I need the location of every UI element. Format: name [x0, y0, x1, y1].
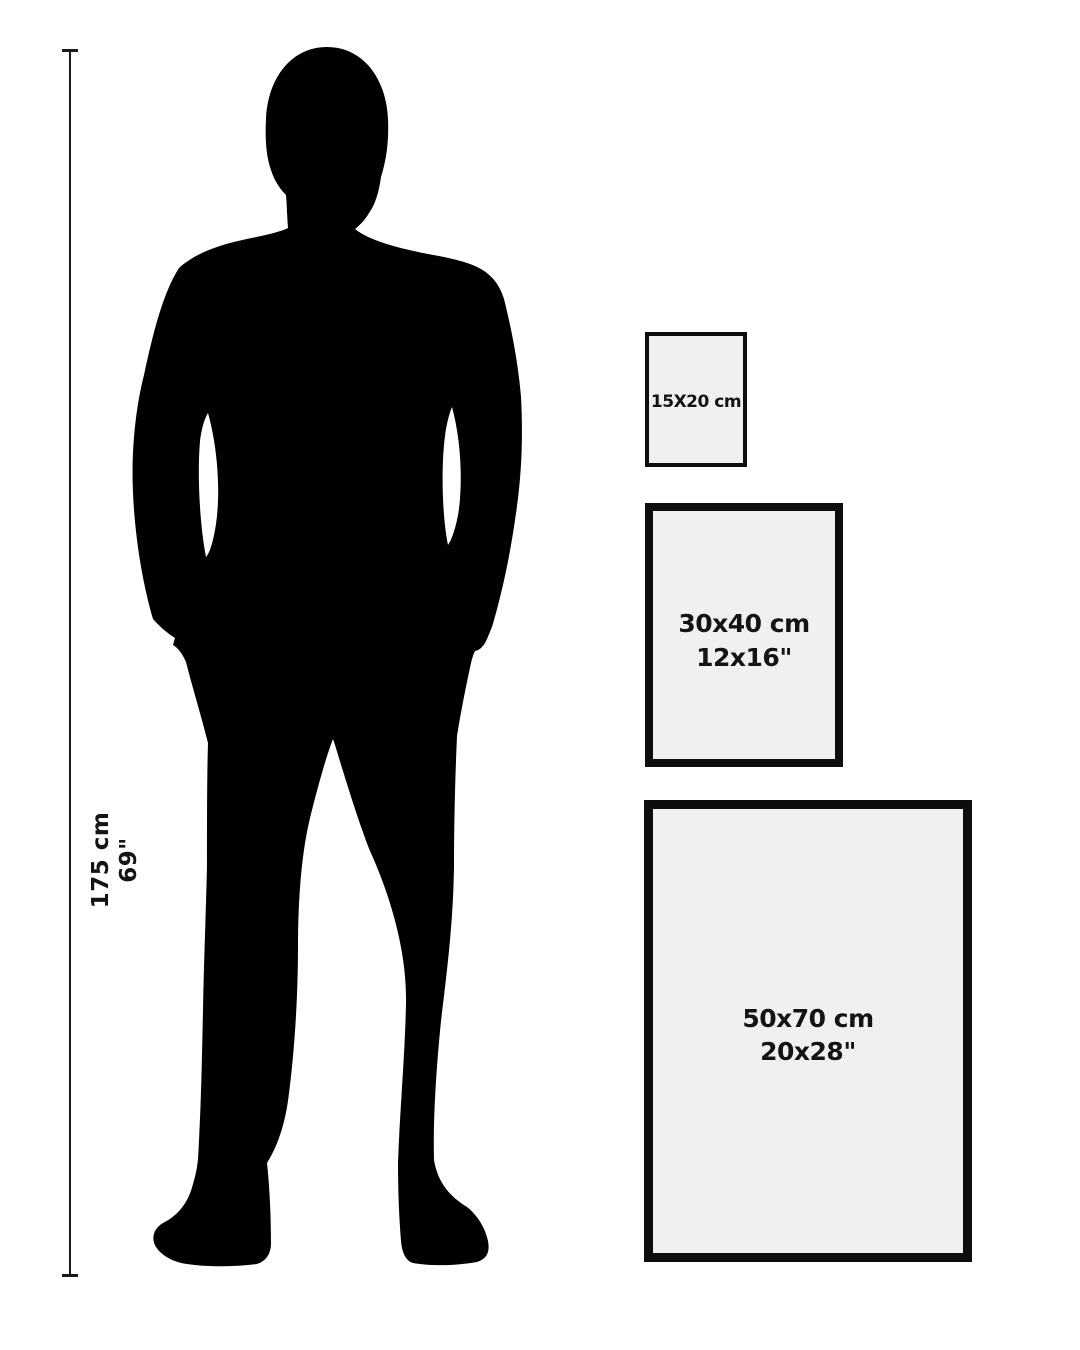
frame-15x20-size-cm: 15X20 cm [651, 392, 741, 412]
height-label-cm: 175 cm [87, 812, 115, 909]
measure-line [69, 50, 71, 1274]
frame-50x70: 50x70 cm 20x28" [644, 800, 972, 1262]
frame-30x40-label: 30x40 cm 12x16" [678, 595, 809, 675]
frame-50x70-size-in: 20x28" [742, 1035, 873, 1068]
frame-15x20-label: 15X20 cm [651, 388, 741, 412]
frame-15x20: 15X20 cm [645, 332, 747, 467]
frame-30x40-size-cm: 30x40 cm [678, 607, 809, 641]
man-silhouette-icon [130, 45, 525, 1270]
frame-50x70-label: 50x70 cm 20x28" [742, 994, 873, 1068]
frame-30x40: 30x40 cm 12x16" [645, 503, 843, 767]
frame-50x70-size-cm: 50x70 cm [742, 1002, 873, 1035]
size-comparison-guide: 175 cm 69" 15X20 cm 30x40 cm 12x16" 50x7… [0, 0, 1080, 1350]
frame-30x40-size-in: 12x16" [678, 641, 809, 675]
measure-bottom-cap [62, 1274, 78, 1277]
